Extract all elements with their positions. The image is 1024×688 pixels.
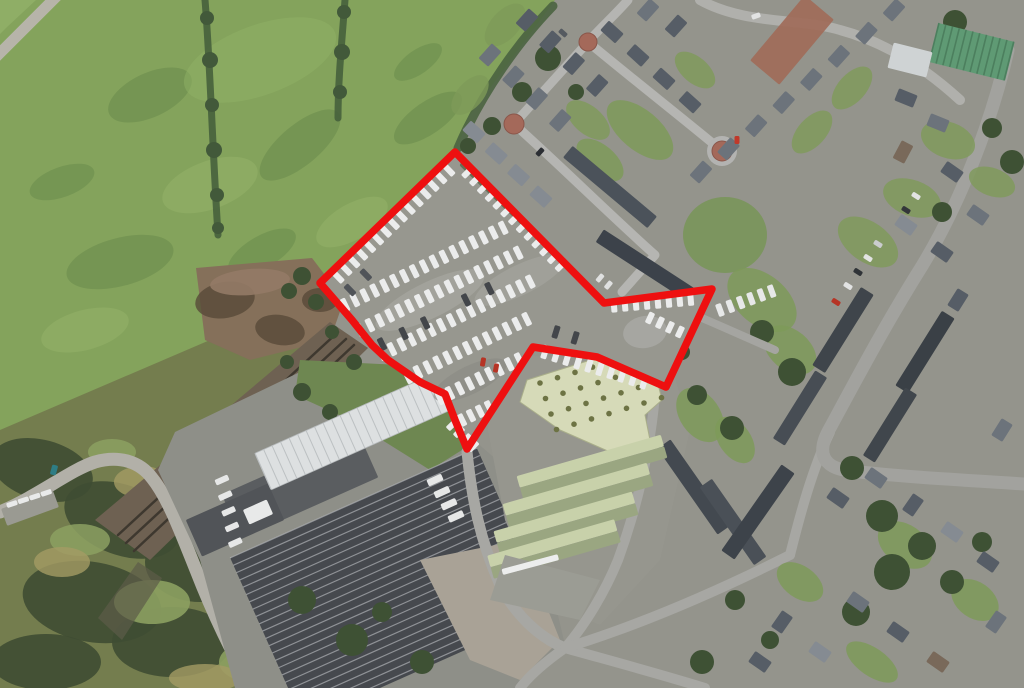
aerial-map <box>0 0 1024 688</box>
roof-vents-0-0 <box>537 380 543 386</box>
tree <box>778 358 806 386</box>
tree <box>568 84 584 100</box>
tree <box>288 586 316 614</box>
paddock <box>683 197 767 273</box>
tree <box>840 456 864 480</box>
roof-vents-2-0 <box>572 370 578 376</box>
roof-vents-0-2 <box>548 411 554 417</box>
roof-vents-2-3 <box>589 416 595 422</box>
roof-vents-1-2 <box>566 406 572 412</box>
roof-vents-3-1 <box>595 380 601 386</box>
hedgerow-tree <box>212 222 224 234</box>
tree <box>725 590 745 610</box>
tree <box>982 118 1002 138</box>
verge-tree <box>308 294 324 310</box>
tree <box>372 602 392 622</box>
paved-circle <box>504 114 524 134</box>
roof-vents-6-3 <box>659 395 665 401</box>
hedgerow-tree <box>210 188 224 202</box>
roof-vents-1-0 <box>555 375 561 381</box>
roof-vents-3-3 <box>606 411 612 417</box>
hedgerow-tree <box>333 85 347 99</box>
tree <box>761 631 779 649</box>
tree <box>460 138 476 154</box>
roof-vents-0-3 <box>554 427 560 433</box>
map-svg <box>0 0 1024 688</box>
hedgerow-tree <box>200 11 214 25</box>
roof-vents-1-3 <box>571 421 577 427</box>
verge-tree <box>325 325 339 339</box>
tree <box>687 385 707 405</box>
roof-vents-0-1 <box>543 396 549 402</box>
tree <box>972 532 992 552</box>
scrub-gorse <box>34 547 90 577</box>
tree <box>908 532 936 560</box>
roof-vents-3-2 <box>601 395 607 401</box>
hedgerow-tree <box>334 44 350 60</box>
hedgerow-tree <box>205 98 219 112</box>
verge-tree <box>293 383 311 401</box>
verge-tree <box>281 283 297 299</box>
hedgerow-tree <box>206 142 222 158</box>
roof-vents-1-1 <box>560 390 566 396</box>
verge-tree <box>293 267 311 285</box>
paved-circle <box>579 33 597 51</box>
verge-tree <box>346 354 362 370</box>
roof-vents-5-3 <box>641 400 647 406</box>
tree <box>940 570 964 594</box>
roof-vents-2-1 <box>578 385 584 391</box>
roof-vents-4-2 <box>618 390 624 396</box>
red-car <box>735 136 740 144</box>
tree <box>866 500 898 532</box>
tree <box>483 117 501 135</box>
verge-tree <box>280 355 294 369</box>
hedgerow-tree <box>202 52 218 68</box>
tree <box>1000 150 1024 174</box>
tree <box>720 416 744 440</box>
tree <box>932 202 952 222</box>
roof-vents-2-2 <box>583 401 589 407</box>
tree <box>690 650 714 674</box>
roof-vents-4-1 <box>613 375 619 381</box>
hedgerow-tree <box>337 5 351 19</box>
roof-vents-4-3 <box>624 406 630 412</box>
tree <box>874 554 910 590</box>
tree <box>336 624 368 656</box>
tree <box>410 650 434 674</box>
